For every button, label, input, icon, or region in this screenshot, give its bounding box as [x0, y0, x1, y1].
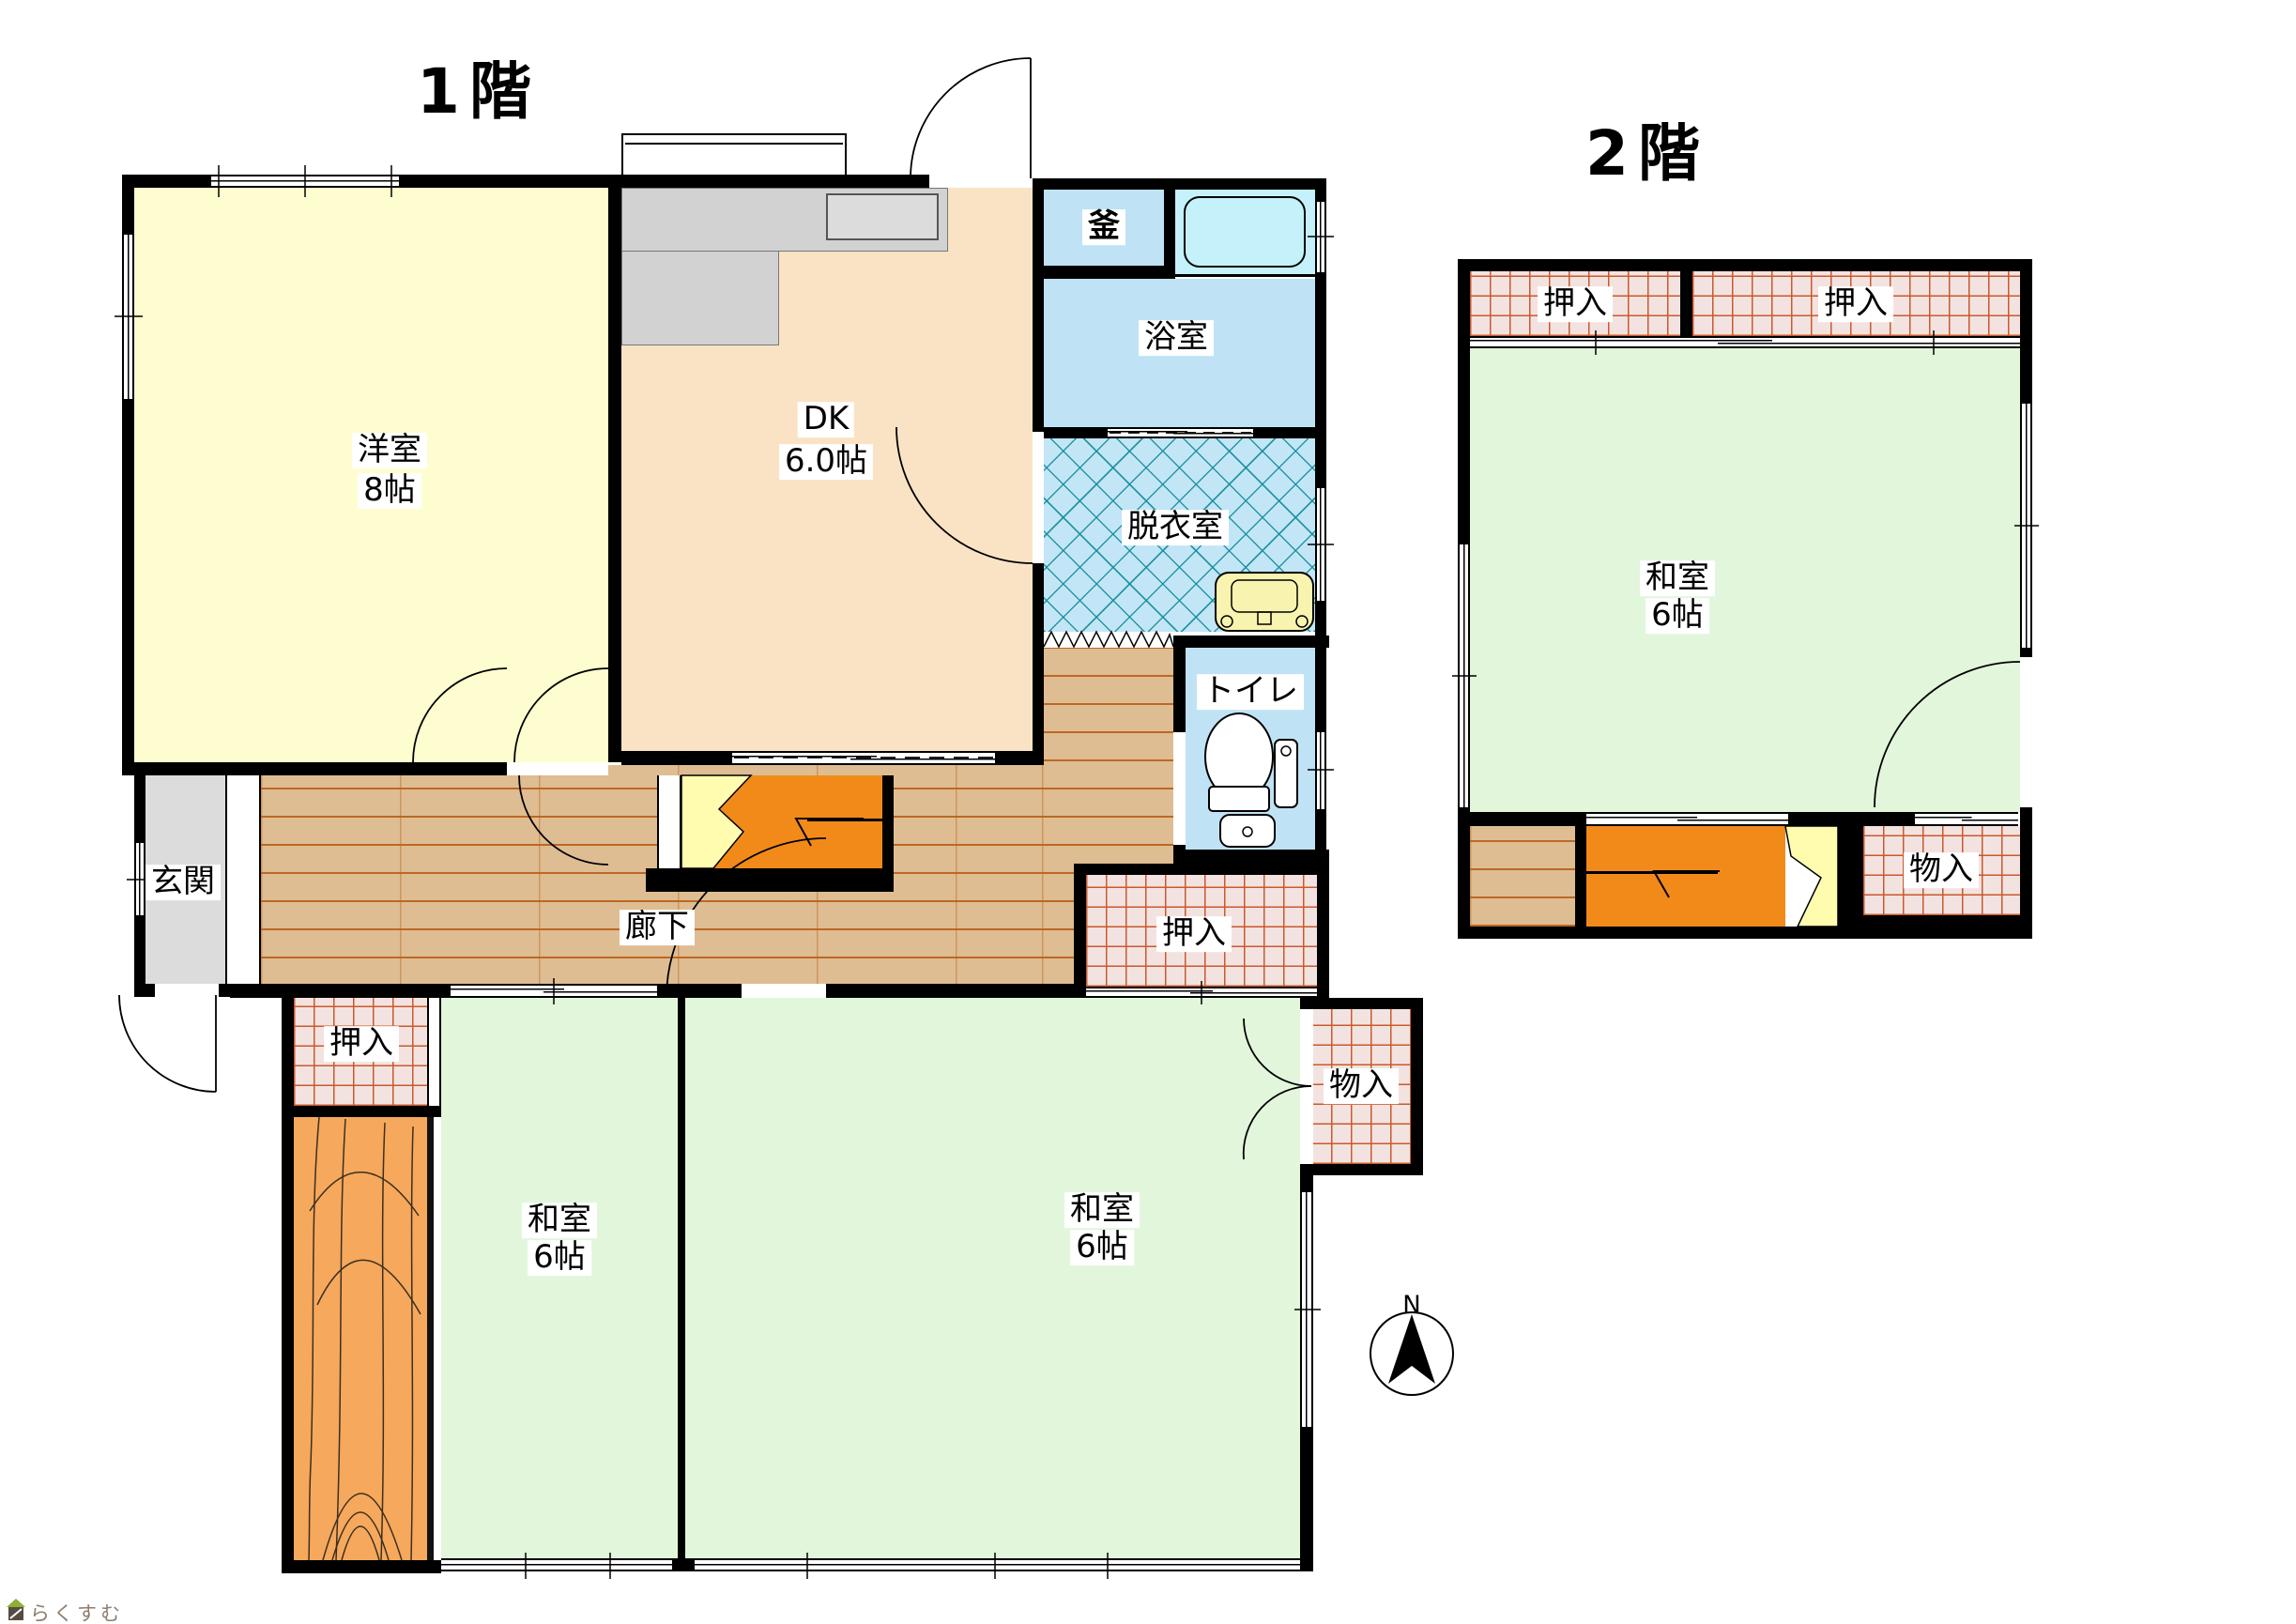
door-arc-2f: [1875, 662, 2020, 807]
door-arc-dk-entrance: [911, 58, 1031, 178]
stairs-2f-arrow: [1654, 871, 1720, 897]
label-dressing: 脱衣室: [1122, 510, 1229, 545]
label-dk-size: 6.0帖: [779, 444, 873, 480]
watermark-house-icon: [7, 1599, 25, 1620]
stairs-1f-arrow: [796, 819, 864, 846]
label-storage-1f: 物入: [1324, 1068, 1399, 1104]
label-bathroom: 浴室: [1139, 320, 1214, 356]
label-washitsu-west-size: 6帖: [528, 1240, 591, 1276]
door-arc-dk-dressing: [896, 427, 1033, 563]
label-storage-2f: 物入: [1904, 852, 1979, 888]
door-arc-storage1f-bottom: [1244, 1086, 1311, 1159]
door-arc-genkan: [119, 995, 216, 1092]
door-arc-storage1f-top: [1244, 1019, 1311, 1086]
label-closet-2f-right: 押入: [1818, 286, 1893, 322]
label-washitsu-2f-size: 6帖: [1645, 598, 1709, 634]
floor2-title: 2階: [1585, 103, 1709, 193]
door-arc-western-left: [413, 668, 507, 762]
label-closet-west: 押入: [324, 1026, 399, 1062]
door-arc-western-corridor: [519, 775, 608, 865]
label-genkan: 玄関: [145, 865, 221, 900]
label-washitsu-east: 和室: [1064, 1192, 1140, 1228]
door-arc-western-right: [514, 668, 608, 762]
label-toilet: トイレ: [1197, 674, 1304, 710]
label-washitsu-2f: 和室: [1640, 560, 1715, 596]
toilet: [1205, 713, 1297, 847]
stair-break-2f: [1785, 826, 1838, 927]
compass-north-label: N: [1402, 1293, 1420, 1318]
label-corridor: 廊下: [620, 910, 695, 945]
window-ticks: [115, 165, 2039, 1579]
label-washitsu-east-size: 6帖: [1070, 1230, 1134, 1265]
watermark-text: らくすむ: [30, 1599, 124, 1624]
label-dk: DK: [798, 402, 854, 437]
floor1-title: 1階: [417, 41, 541, 131]
stair-break-1f: [681, 775, 751, 868]
label-kama: 釜: [1082, 209, 1125, 245]
label-western-room-size: 8帖: [358, 473, 421, 509]
label-closet-hall: 押入: [1156, 916, 1232, 952]
bathtub: [1185, 197, 1305, 267]
washbasin: [1216, 573, 1313, 631]
overlay-graphics: [0, 0, 2296, 1624]
floor-plan-canvas: 1階 2階 洋室 8帖 DK 6.0帖 釜 浴室 脱衣室 トイレ 玄関 廊下 押…: [0, 0, 2296, 1624]
label-washitsu-west: 和室: [522, 1203, 597, 1238]
label-western-room: 洋室: [352, 433, 427, 468]
label-closet-2f-left: 押入: [1538, 286, 1613, 322]
compass-icon: [1370, 1312, 1453, 1395]
zigzag-mask: [1044, 632, 1173, 648]
veranda-grain: [309, 1117, 421, 1560]
